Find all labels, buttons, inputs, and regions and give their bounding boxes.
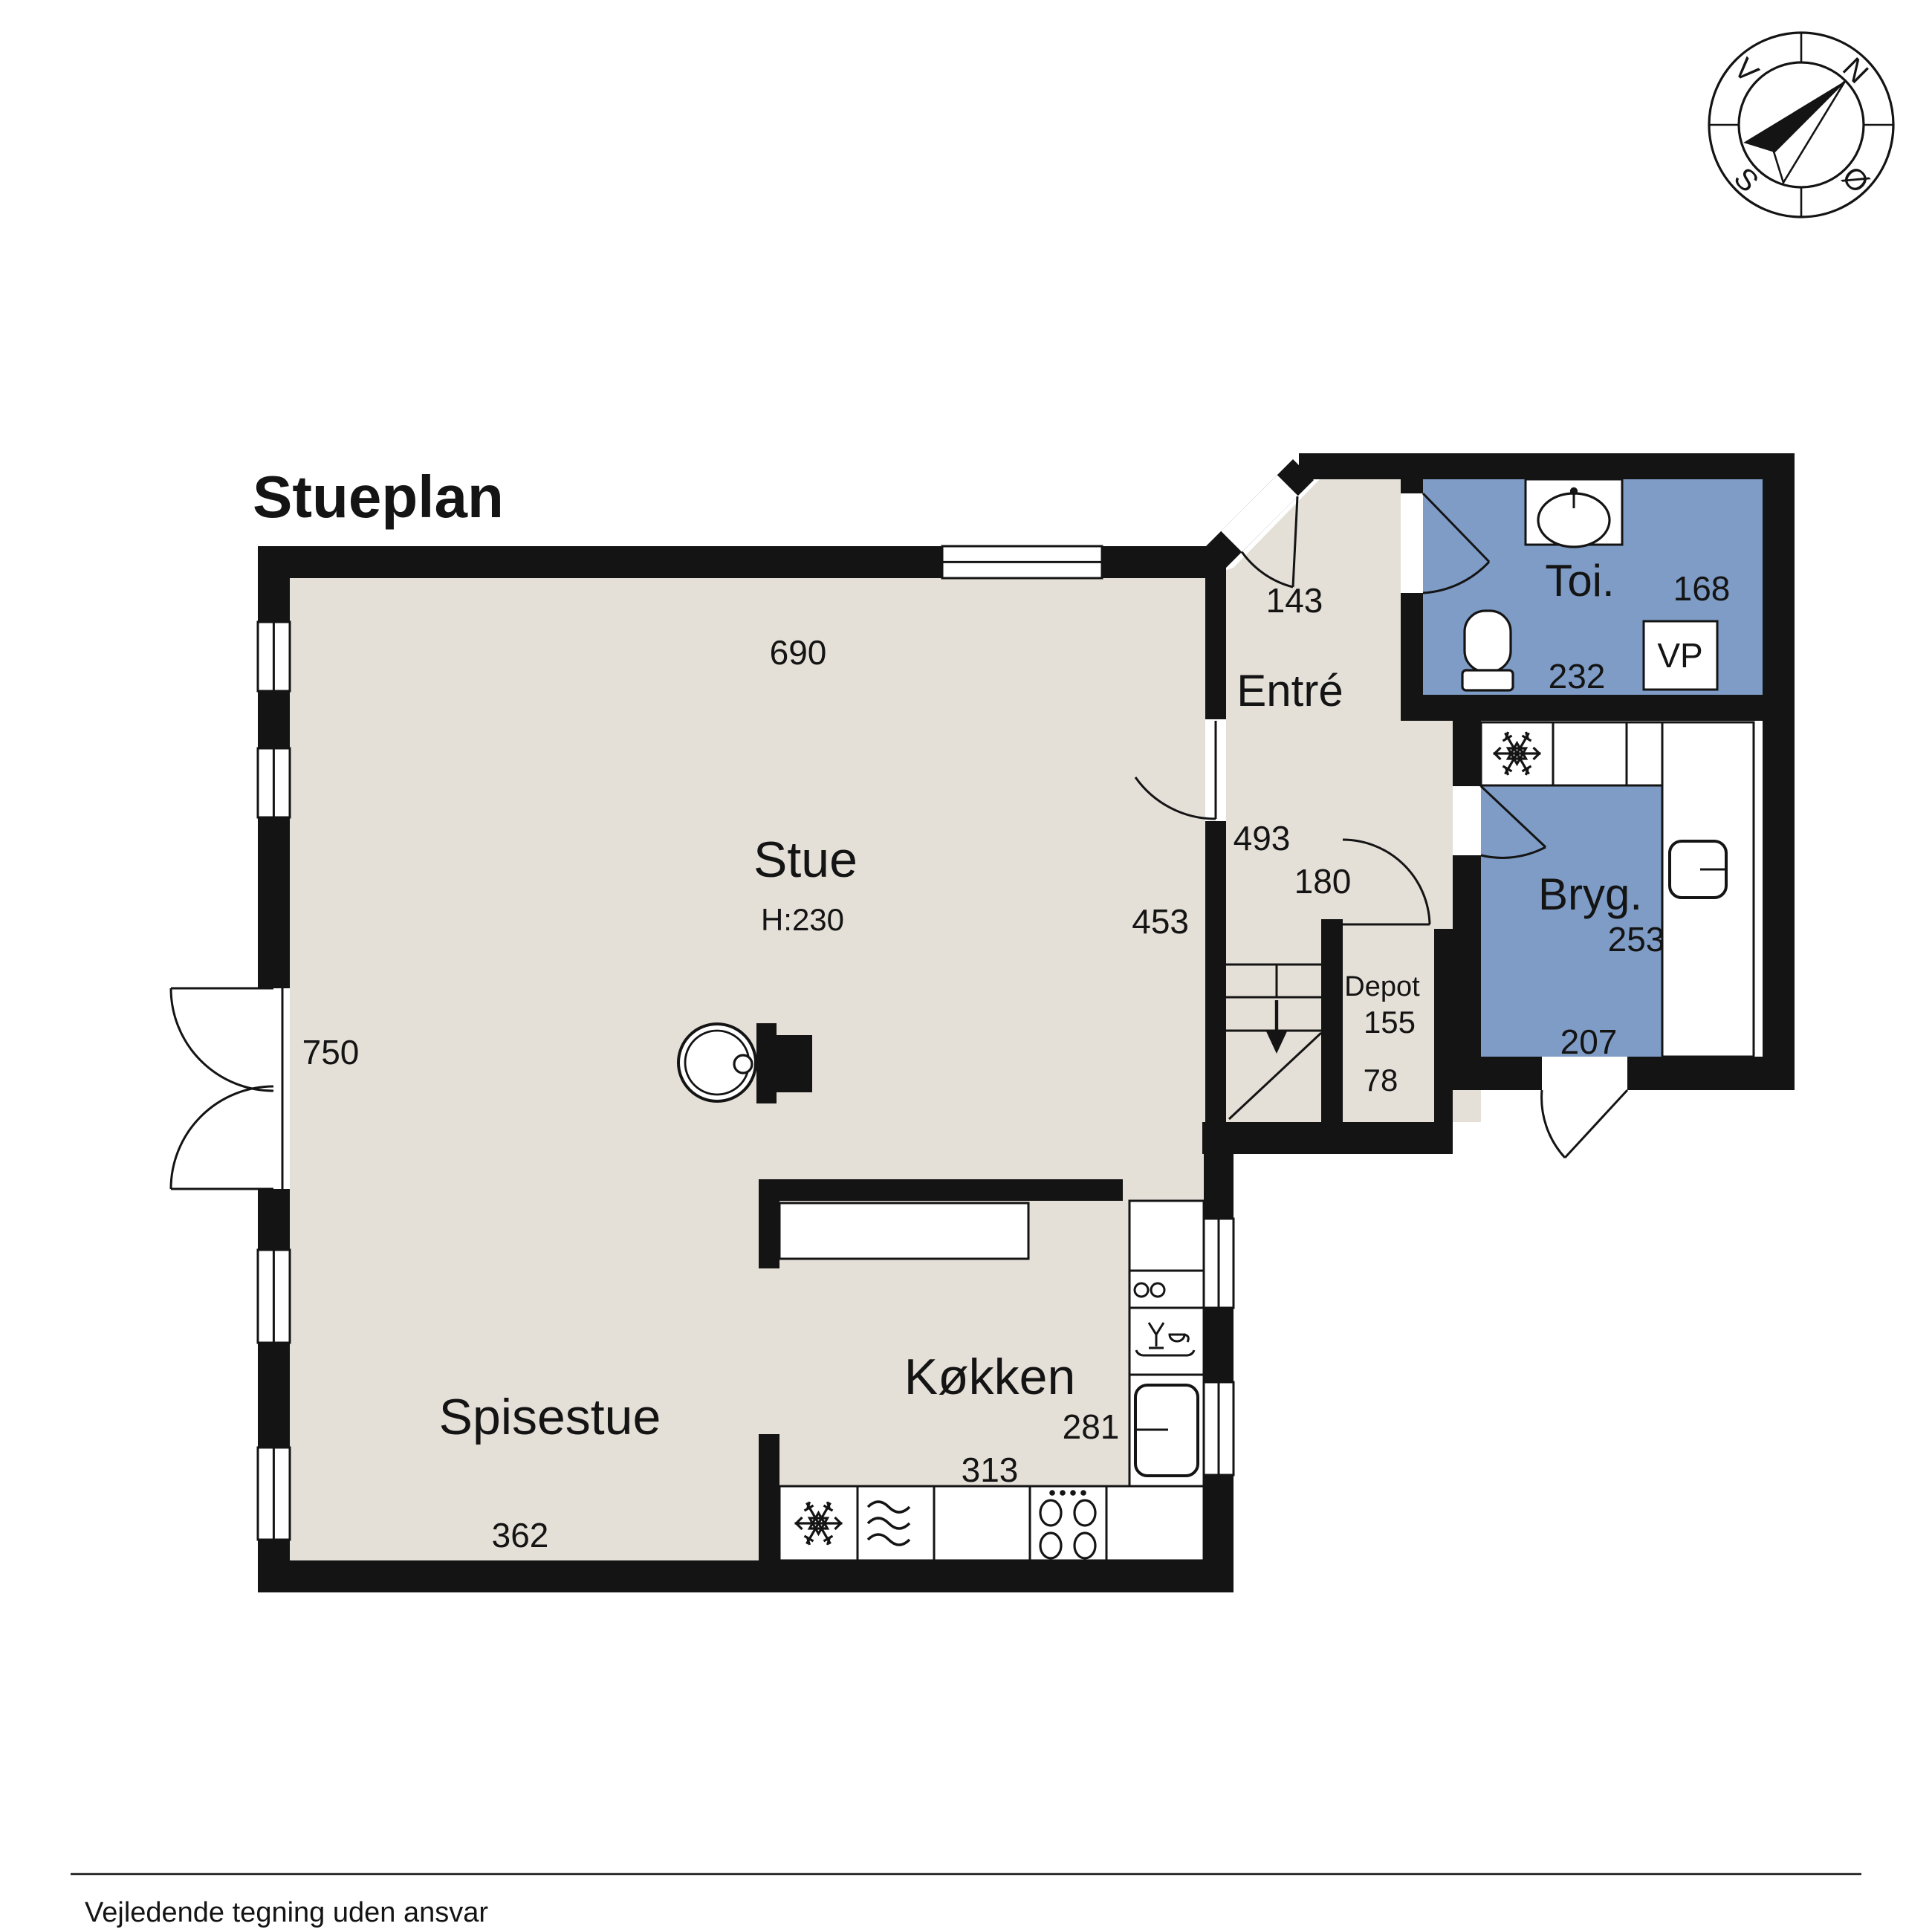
stue-dim-right: 453 [1132, 902, 1189, 941]
bryggers-exterior-door [1542, 1057, 1627, 1158]
footer: Vejledende tegning uden ansvar [71, 1874, 1861, 1928]
french-doors-west [171, 988, 290, 1189]
washbasin-icon [1526, 479, 1622, 547]
footer-disclaimer: Vejledende tegning uden ansvar [85, 1897, 488, 1928]
entre-dim-left: 493 [1234, 819, 1291, 858]
toilet-icon [1462, 611, 1513, 690]
bryggers-dim-bottom: 207 [1560, 1022, 1618, 1061]
toilet-dim-right: 168 [1673, 569, 1731, 608]
window-kitchen-east-2 [1204, 1382, 1234, 1475]
entre-dim-stair: 180 [1294, 862, 1352, 901]
toilet-dim-bottom: 232 [1549, 657, 1606, 696]
window-left-4 [258, 1448, 290, 1540]
fridge-icon [1135, 1385, 1198, 1476]
kitchen-island [779, 1203, 1028, 1259]
window-left-1 [258, 622, 290, 691]
compass-rose-icon: N Ø S V [1670, 0, 1932, 256]
window-left-3 [258, 1250, 290, 1343]
depot-dim-bottom: 78 [1364, 1063, 1398, 1098]
kokken-dim-right: 281 [1063, 1407, 1120, 1446]
stue-label: Stue [753, 832, 858, 888]
bryggers-label: Bryg. [1538, 869, 1642, 919]
heat-pump-label: VP [1657, 636, 1702, 675]
window-left-2 [258, 748, 290, 817]
kitchen-bottom-counter [779, 1486, 1204, 1560]
depot-dim: 155 [1364, 1005, 1416, 1040]
stue-dim-left: 750 [302, 1033, 360, 1072]
depot-label: Depot [1344, 971, 1420, 1002]
washing-machine-icon [1670, 841, 1726, 898]
bryggers-dim-right: 253 [1608, 920, 1665, 959]
kokken-label: Køkken [904, 1349, 1076, 1405]
bryggers-cabinet [1553, 722, 1627, 785]
entre-label: Entré [1236, 666, 1343, 716]
stue-dim-top: 690 [770, 633, 827, 672]
window-top [942, 546, 1102, 578]
window-kitchen-east-1 [1204, 1219, 1234, 1308]
kitchen-east-counter [1129, 1201, 1204, 1486]
entre-dim-top: 143 [1266, 581, 1323, 620]
toilet-label: Toi. [1545, 556, 1614, 606]
stue-ceiling-height: H:230 [761, 902, 844, 937]
spisestue-label: Spisestue [439, 1389, 661, 1445]
floor-plan: N Ø S V Stueplan 690 Stue H:230 453 750 … [0, 0, 1932, 1932]
spisestue-dim-bottom: 362 [492, 1516, 549, 1555]
page-title: Stueplan [253, 464, 504, 530]
kokken-dim-bottom: 313 [962, 1450, 1019, 1489]
